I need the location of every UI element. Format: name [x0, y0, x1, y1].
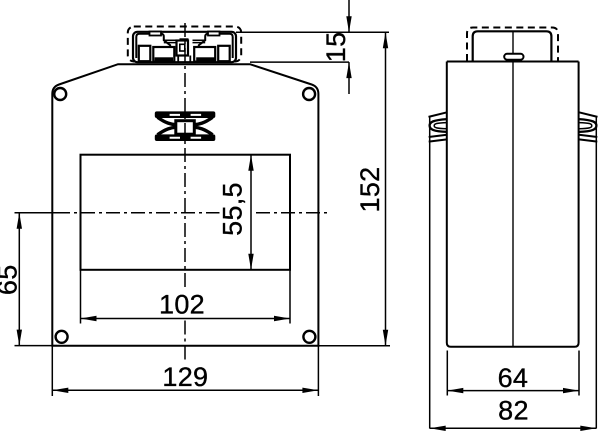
svg-text:15: 15 [321, 32, 351, 63]
svg-text:102: 102 [159, 290, 205, 320]
svg-text:82: 82 [498, 395, 529, 425]
svg-text:129: 129 [162, 362, 208, 392]
svg-text:65: 65 [0, 264, 22, 295]
svg-text:55,5: 55,5 [217, 182, 247, 236]
svg-text:152: 152 [355, 167, 385, 213]
svg-text:64: 64 [498, 363, 529, 393]
